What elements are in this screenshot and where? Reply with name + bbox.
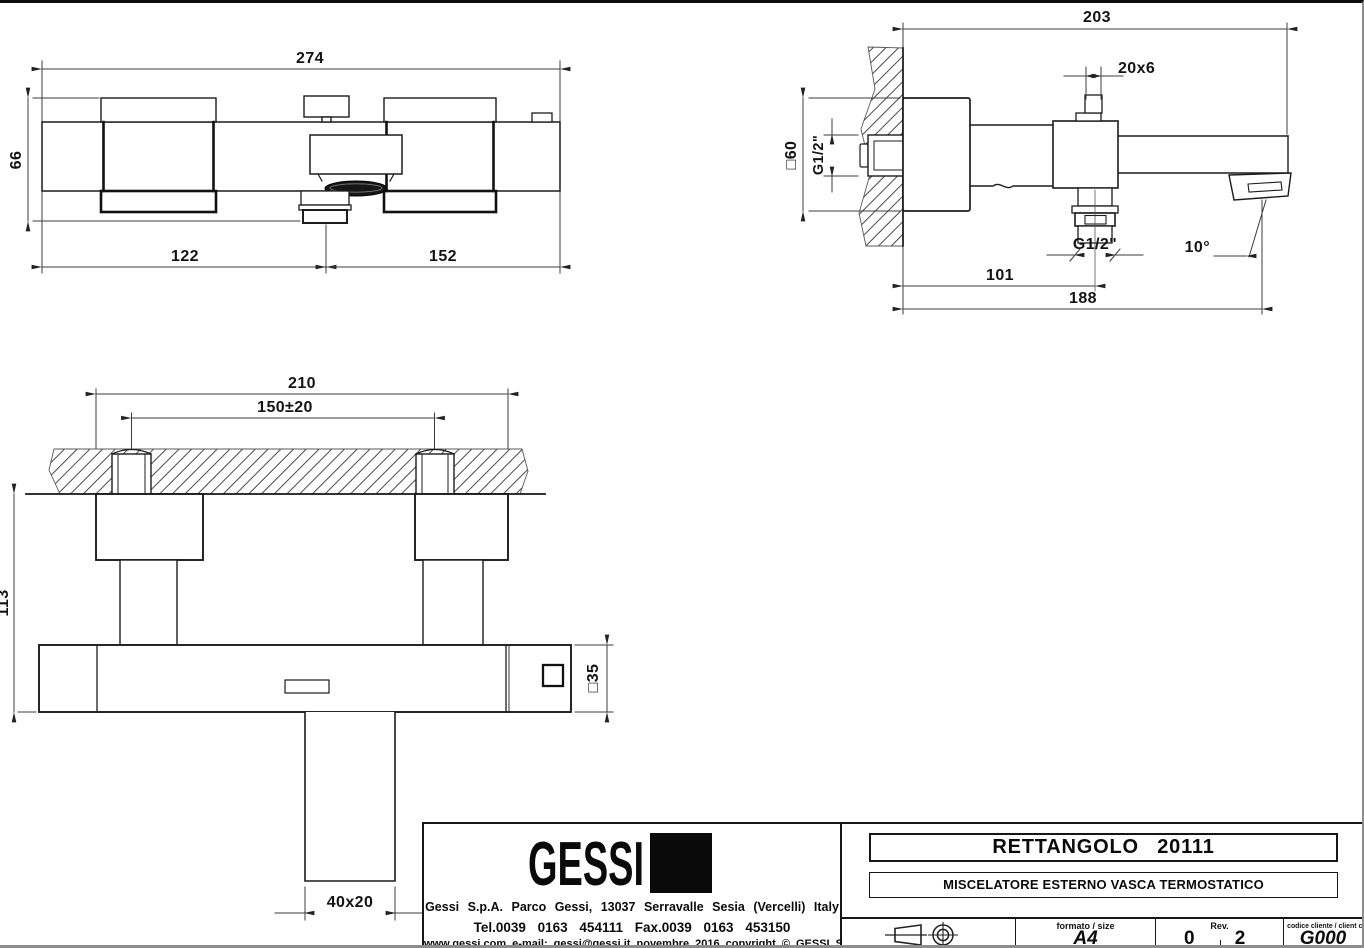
handshower-outlet (299, 191, 351, 223)
dim-lines-g12-inlet (824, 119, 858, 192)
spout-tube-side (1118, 136, 1288, 173)
dim-20x6: 20x6 (1118, 60, 1155, 77)
revision-value-left: 0 (1184, 928, 1195, 948)
dim-square60: □60 (783, 141, 800, 170)
company-phone: Tel.0039 0163 454111 Fax.0039 0163 45315… (424, 920, 840, 935)
escutcheon-right (415, 494, 508, 560)
dim-203: 203 (1083, 9, 1111, 26)
company-address: Gessi S.p.A. Parco Gessi, 13037 Serraval… (424, 900, 840, 914)
stem-left (120, 560, 177, 645)
side-view: 203 □60 G1/2" (783, 9, 1291, 314)
revision-cell: Rev. 0 2 (1155, 919, 1283, 948)
body-end-tab (532, 113, 552, 122)
dim-274: 274 (296, 50, 324, 67)
escutcheon-side (903, 98, 970, 211)
dim-66: 66 (8, 151, 25, 170)
thermostat-block (1053, 121, 1118, 188)
title-block-row: formato / size A4 Rev. 0 2 codice client… (842, 917, 1362, 948)
dim-lines-122-152 (42, 225, 560, 273)
first-angle-projection-icon (869, 920, 989, 948)
revision-label: Rev. (1156, 921, 1283, 931)
drawing-sheet: 274 66 (0, 0, 1364, 948)
company-block: GESSI Gessi S.p.A. Parco Gessi, 13037 Se… (422, 822, 842, 948)
dim-113: 113 (0, 589, 12, 616)
display-slot (285, 680, 329, 693)
spout-tip (1229, 173, 1291, 200)
dim-122: 122 (171, 248, 199, 265)
dim-g12-outlet: G1/2" (1073, 236, 1117, 253)
dim-210: 210 (288, 375, 316, 392)
client-code-value: G000 (1284, 928, 1362, 948)
client-code-cell: codice cliente / client code G000 (1283, 919, 1362, 948)
technical-drawing: 274 66 (0, 3, 1364, 948)
product-subtitle: MISCELATORE ESTERNO VASCA TERMOSTATICO (869, 872, 1338, 898)
projection-symbol-cell (842, 919, 1015, 948)
format-value: A4 (1016, 928, 1155, 948)
gessi-logo-text: GESSI (528, 832, 644, 896)
end-cap-button (543, 665, 563, 686)
dim-square35: □35 (585, 664, 602, 693)
dim-lines-10deg (1214, 200, 1266, 314)
revision-divider (1220, 940, 1222, 948)
dim-152: 152 (429, 248, 457, 265)
dim-lines-20x6 (1064, 67, 1123, 99)
gessi-logo: GESSI (528, 832, 718, 896)
format-cell: formato / size A4 (1015, 919, 1155, 948)
spout-tube-plan (305, 712, 395, 881)
dim-101: 101 (986, 267, 1014, 284)
dim-lines-113 (14, 494, 36, 712)
mixer-body-front (42, 122, 560, 191)
stem-right (423, 560, 483, 645)
mixer-body-plan (39, 645, 571, 712)
mounting-nipple-right (416, 450, 454, 495)
gessi-logo-square (650, 833, 712, 893)
dim-10deg: 10° (1185, 239, 1210, 256)
dim-188: 188 (1069, 290, 1097, 307)
revision-value-right: 2 (1235, 928, 1246, 948)
dim-g12-inlet: G1/2" (811, 135, 827, 175)
product-title: RETTANGOLO 20111 (869, 833, 1338, 862)
diverter-knob-side (1076, 95, 1102, 121)
dim-150pm20: 150±20 (257, 399, 313, 416)
diverter-knob-front (304, 96, 349, 122)
company-web: www.gessi.com e-mail: gessi@gessi.it nov… (424, 938, 840, 948)
dim-40x20: 40x20 (327, 894, 374, 911)
escutcheon-left (96, 494, 203, 560)
title-block: RETTANGOLO 20111 MISCELATORE ESTERNO VAS… (842, 822, 1362, 948)
connecting-tube (970, 125, 1053, 188)
mounting-nipple-left (112, 450, 151, 495)
front-view: 274 66 (8, 50, 560, 273)
